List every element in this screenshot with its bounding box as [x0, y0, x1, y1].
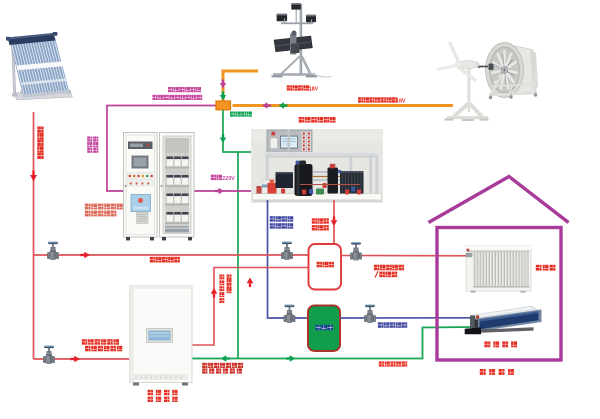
svg-text:18V: 18V	[309, 86, 319, 92]
svg-text:220V: 220V	[222, 176, 235, 182]
svg-text:18V: 18V	[396, 98, 406, 104]
